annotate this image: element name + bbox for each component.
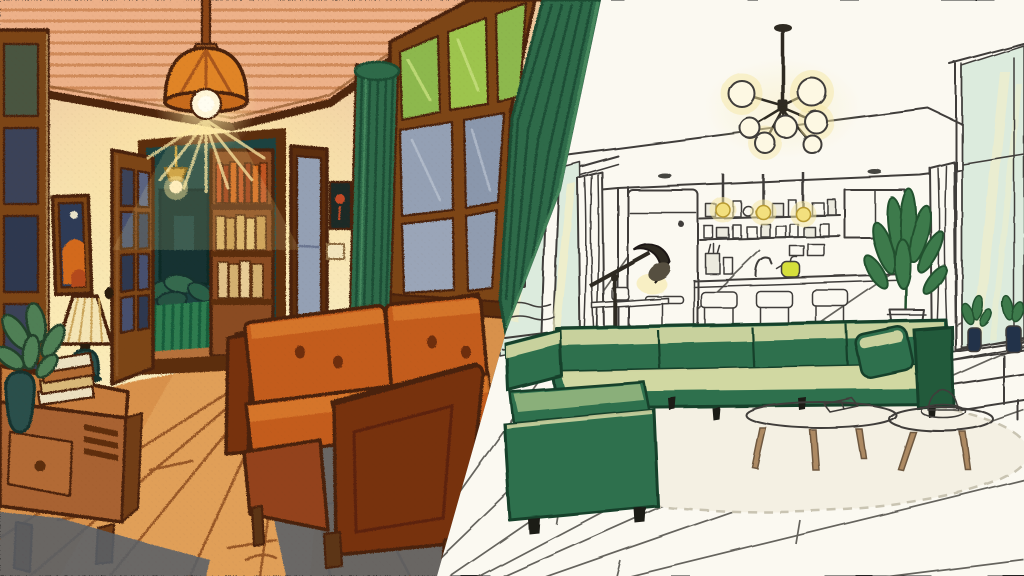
white-curtain-left xyxy=(578,172,604,340)
sofa-arm-right xyxy=(914,327,954,408)
chaise-front xyxy=(504,410,658,520)
recessed-light xyxy=(868,170,882,175)
illustration-canvas xyxy=(0,0,1024,576)
split-interior-illustration xyxy=(0,0,1024,576)
green-pillow xyxy=(854,325,914,379)
recessed-light xyxy=(658,174,672,179)
